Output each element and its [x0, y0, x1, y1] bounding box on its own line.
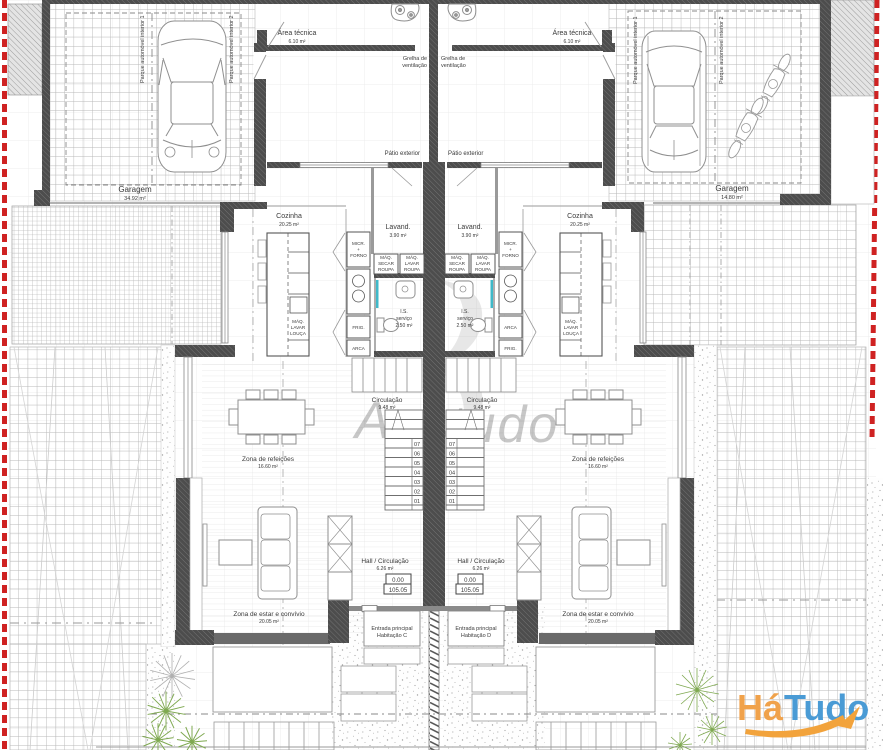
- svg-text:+: +: [357, 247, 360, 252]
- svg-text:FRIG.: FRIG.: [504, 346, 516, 351]
- svg-text:MÁQ.: MÁQ.: [380, 254, 392, 260]
- svg-text:Pátio exterior: Pátio exterior: [448, 151, 483, 157]
- svg-text:FORNO: FORNO: [350, 253, 367, 258]
- svg-text:Área técnica: Área técnica: [553, 28, 592, 37]
- svg-text:Grelha de: Grelha de: [403, 56, 427, 62]
- svg-text:ARCA: ARCA: [352, 346, 366, 351]
- svg-text:3.90 m²: 3.90 m²: [390, 233, 407, 239]
- svg-text:LOUÇA: LOUÇA: [290, 331, 307, 336]
- svg-text:3.90 m²: 3.90 m²: [462, 233, 479, 239]
- svg-text:03: 03: [414, 480, 420, 486]
- svg-text:LAVAR: LAVAR: [291, 325, 306, 330]
- svg-text:ventilação: ventilação: [441, 63, 466, 69]
- svg-text:LAVAR: LAVAR: [564, 325, 579, 330]
- svg-text:Área técnica: Área técnica: [278, 28, 317, 37]
- svg-text:0.00: 0.00: [464, 578, 476, 584]
- svg-text:01: 01: [414, 499, 420, 505]
- svg-text:05: 05: [449, 461, 455, 467]
- svg-text:Habitação C: Habitação C: [377, 633, 407, 639]
- svg-text:6.26 m²: 6.26 m²: [473, 566, 490, 572]
- svg-text:+: +: [509, 247, 512, 252]
- svg-text:34.92 m²: 34.92 m²: [124, 196, 146, 202]
- svg-text:0.00: 0.00: [392, 578, 404, 584]
- svg-text:SECAR: SECAR: [378, 261, 395, 266]
- svg-text:Zona de refeições: Zona de refeições: [242, 456, 295, 463]
- svg-text:Pátio exterior: Pátio exterior: [385, 151, 420, 157]
- svg-text:06: 06: [449, 452, 455, 458]
- svg-text:03: 03: [449, 480, 455, 486]
- svg-text:Parque automóvel interior 1: Parque automóvel interior 1: [633, 16, 639, 84]
- svg-text:I.S.: I.S.: [400, 309, 408, 315]
- svg-text:Garagem: Garagem: [118, 185, 152, 194]
- svg-text:6.26 m²: 6.26 m²: [377, 566, 394, 572]
- svg-text:Circulação: Circulação: [467, 397, 498, 404]
- svg-text:Grelha de: Grelha de: [441, 56, 465, 62]
- svg-text:MÁQ.: MÁQ.: [292, 318, 304, 324]
- svg-text:MÁQ.: MÁQ.: [451, 254, 463, 260]
- svg-text:16.60 m²: 16.60 m²: [258, 464, 278, 470]
- svg-text:LAVAR: LAVAR: [476, 261, 491, 266]
- svg-text:MÁQ.: MÁQ.: [406, 254, 418, 260]
- svg-text:SECAR: SECAR: [449, 261, 466, 266]
- svg-text:FORNO: FORNO: [502, 253, 519, 258]
- svg-text:Habitação D: Habitação D: [461, 633, 491, 639]
- svg-text:serviço: serviço: [457, 316, 473, 322]
- svg-text:Há: Há: [737, 687, 784, 728]
- svg-text:ROUPA: ROUPA: [404, 267, 421, 272]
- svg-text:14.80 m²: 14.80 m²: [721, 195, 743, 201]
- svg-text:01: 01: [449, 499, 455, 505]
- svg-text:Zona de refeições: Zona de refeições: [572, 456, 625, 463]
- svg-text:ROUPA: ROUPA: [378, 267, 395, 272]
- svg-text:04: 04: [414, 471, 420, 477]
- svg-text:04: 04: [449, 471, 455, 477]
- svg-text:06: 06: [414, 452, 420, 458]
- svg-text:07: 07: [449, 442, 455, 448]
- svg-text:I.S.: I.S.: [461, 309, 469, 315]
- svg-text:Entrada principal: Entrada principal: [371, 626, 412, 632]
- svg-text:07: 07: [414, 442, 420, 448]
- svg-text:9.48 m²: 9.48 m²: [379, 405, 396, 411]
- svg-text:ROUPA: ROUPA: [475, 267, 492, 272]
- svg-text:MICR.: MICR.: [352, 241, 365, 246]
- svg-text:Cozinha: Cozinha: [567, 213, 593, 220]
- svg-text:2.50 m²: 2.50 m²: [457, 323, 474, 329]
- svg-text:MÁQ.: MÁQ.: [565, 318, 577, 324]
- svg-text:Parque automóvel interior 2: Parque automóvel interior 2: [719, 16, 725, 84]
- svg-text:02: 02: [449, 490, 455, 496]
- svg-text:6.10 m²: 6.10 m²: [564, 39, 581, 45]
- svg-text:Zona de estar e convívio: Zona de estar e convívio: [233, 611, 305, 618]
- svg-text:105.05: 105.05: [461, 588, 480, 594]
- svg-text:20.05 m²: 20.05 m²: [588, 619, 608, 625]
- svg-text:Parque automóvel interior 2: Parque automóvel interior 2: [229, 15, 235, 83]
- svg-text:MÁQ.: MÁQ.: [477, 254, 489, 260]
- svg-text:02: 02: [414, 490, 420, 496]
- svg-text:serviço: serviço: [396, 316, 412, 322]
- svg-text:Hall / Circulação: Hall / Circulação: [361, 558, 409, 565]
- svg-text:20.05 m²: 20.05 m²: [259, 619, 279, 625]
- svg-text:105.05: 105.05: [389, 588, 408, 594]
- svg-text:Lavand.: Lavand.: [386, 224, 411, 231]
- svg-text:Lavand.: Lavand.: [458, 224, 483, 231]
- svg-text:Parque automóvel interior 1: Parque automóvel interior 1: [140, 15, 146, 83]
- svg-text:Hall / Circulação: Hall / Circulação: [457, 558, 505, 565]
- svg-text:6.10 m²: 6.10 m²: [289, 39, 306, 45]
- svg-text:ventilação: ventilação: [402, 63, 427, 69]
- svg-text:05: 05: [414, 461, 420, 467]
- svg-text:20.25 m²: 20.25 m²: [279, 222, 299, 228]
- svg-text:LAVAR: LAVAR: [405, 261, 420, 266]
- svg-text:20.25 m²: 20.25 m²: [570, 222, 590, 228]
- svg-text:2.50 m²: 2.50 m²: [396, 323, 413, 329]
- svg-text:ARCA: ARCA: [504, 325, 518, 330]
- svg-text:Garagem: Garagem: [715, 184, 749, 193]
- svg-text:9.48 m²: 9.48 m²: [474, 405, 491, 411]
- svg-text:Cozinha: Cozinha: [276, 213, 302, 220]
- svg-text:Zona de estar e convívio: Zona de estar e convívio: [562, 611, 634, 618]
- svg-text:ROUPA: ROUPA: [449, 267, 466, 272]
- svg-text:FRIG.: FRIG.: [352, 325, 364, 330]
- svg-text:16.60 m²: 16.60 m²: [588, 464, 608, 470]
- svg-text:LOUÇA: LOUÇA: [563, 331, 580, 336]
- svg-text:MICR.: MICR.: [504, 241, 517, 246]
- svg-text:Tudo: Tudo: [784, 687, 869, 728]
- svg-text:Circulação: Circulação: [372, 397, 403, 404]
- svg-text:Entrada principal: Entrada principal: [455, 626, 496, 632]
